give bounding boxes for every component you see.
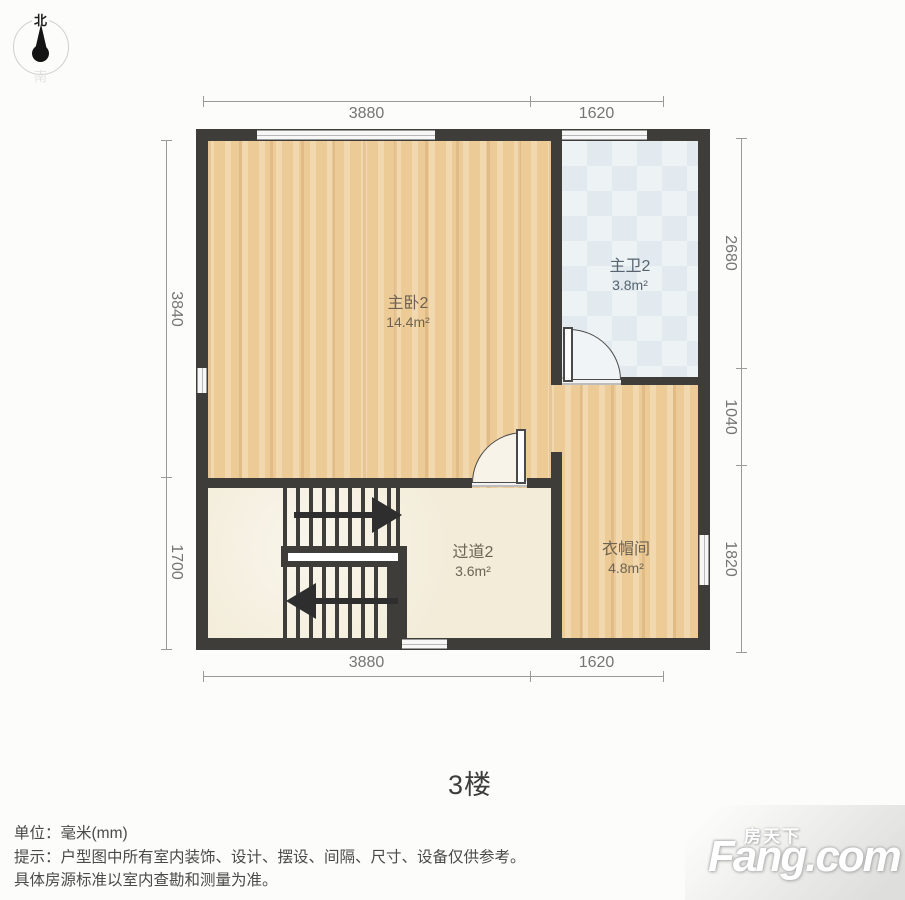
dim-left-2: 1700: [167, 522, 185, 602]
dim-tick: [736, 138, 747, 139]
dim-tick: [161, 140, 172, 141]
hallway-name: 过道2: [413, 543, 533, 562]
closet-area: 4.8m²: [566, 559, 686, 578]
window-top-bedroom: [257, 130, 435, 140]
dim-top-2: 1620: [530, 105, 663, 123]
dim-tick: [530, 671, 531, 682]
footer-tip-line: 提示：户型图中所有室内装饰、设计、摆设、间隔、尺寸、设备仅供参考。: [14, 846, 714, 870]
dim-right-2: 1040: [721, 377, 739, 457]
dim-tick: [736, 652, 747, 653]
dim-line-top: [203, 101, 664, 102]
hallway-closet-wall: [551, 452, 562, 638]
fang-logo: 房天下 Fang.com: [700, 818, 905, 898]
window-top-bathroom: [562, 130, 647, 140]
fang-logo-en: Fang.com: [708, 832, 900, 882]
closet-name: 衣帽间: [566, 540, 686, 559]
stairs-down-arrow-shaft: [314, 598, 398, 604]
bathroom-area: 3.8m²: [565, 276, 695, 295]
window-left-bedroom: [197, 368, 207, 393]
dim-bottom-1: 3880: [203, 654, 530, 672]
dim-tick: [203, 671, 204, 682]
window-bottom-hallway: [402, 639, 447, 649]
dim-right-1: 2680: [721, 213, 739, 293]
stairs-down-arrow-icon: [286, 583, 316, 619]
dim-left-1: 3840: [167, 269, 185, 349]
dim-tick: [736, 368, 747, 369]
dim-bottom-2: 1620: [530, 654, 663, 672]
dim-line-bottom: [203, 676, 664, 677]
dim-tick: [736, 465, 747, 466]
bathroom-label: 主卫2 3.8m²: [565, 257, 695, 295]
compass-icon: 北 南: [8, 4, 78, 86]
dim-right-3: 1820: [721, 519, 739, 599]
dim-top-1: 3880: [203, 105, 530, 123]
stairs-landing-stripe: [288, 553, 398, 561]
hallway-area: 3.6m²: [413, 562, 533, 581]
footer-disclaimer: 单位：毫米(mm) 提示：户型图中所有室内装饰、设计、摆设、间隔、尺寸、设备仅供…: [14, 822, 714, 893]
bedroom-bottom-wall-left: [208, 478, 472, 488]
hallway-door-leaf: [516, 429, 526, 484]
window-right-closet: [699, 535, 709, 585]
hallway-label: 过道2 3.6m²: [413, 543, 533, 581]
bathroom-name: 主卫2: [565, 257, 695, 276]
floorplan-page: 北 南 主卧2 14.4m² 主卫2 3.8m²: [0, 0, 905, 900]
footer-tip-line2: 具体房源标准以室内查勘和测量为准。: [14, 869, 714, 893]
dim-line-right: [741, 138, 742, 653]
bathroom-door-leaf: [563, 327, 573, 382]
footer-unit-line: 单位：毫米(mm): [14, 822, 714, 846]
dim-tick: [663, 671, 664, 682]
bedroom-name: 主卧2: [338, 294, 478, 313]
dim-tick: [663, 96, 664, 107]
floor-label: 3楼: [395, 763, 545, 802]
compass-south-label: 南: [34, 66, 47, 85]
dim-tick: [161, 477, 172, 478]
compass-needle-ball: [32, 45, 49, 62]
closet-label: 衣帽间 4.8m²: [566, 540, 686, 578]
bathroom-bottom-wall: [621, 377, 698, 385]
bedroom-label: 主卧2 14.4m²: [338, 294, 478, 332]
bedroom-area: 14.4m²: [338, 313, 478, 332]
dim-tick: [161, 649, 172, 650]
bathroom-left-wall: [551, 141, 562, 385]
stairs-up-arrow-icon: [372, 497, 402, 533]
stairs-up-arrow-shaft: [294, 512, 376, 518]
